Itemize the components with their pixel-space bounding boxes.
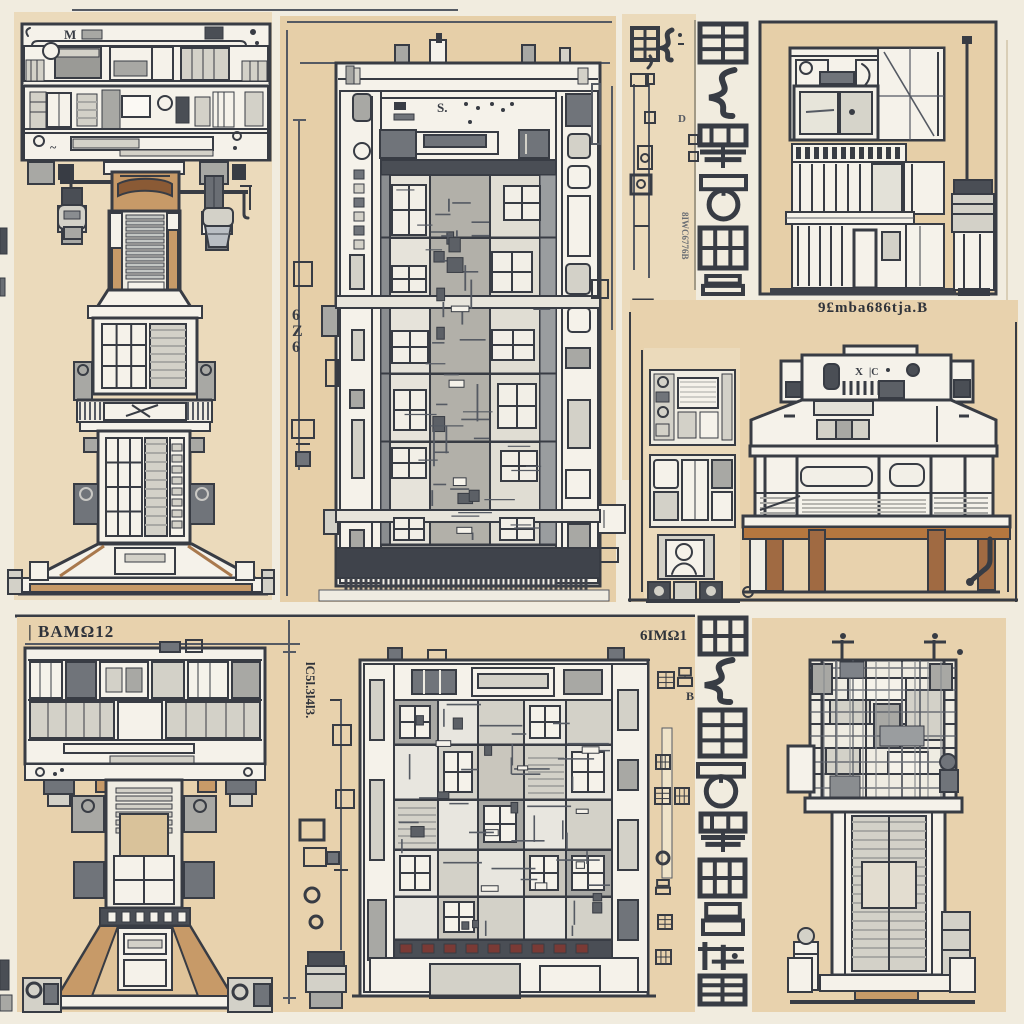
svg-text:6: 6 <box>292 339 300 356</box>
svg-text:|C: |C <box>869 367 878 378</box>
svg-text:| BAMΩ12: | BAMΩ12 <box>28 622 114 641</box>
svg-text:Z: Z <box>292 323 303 340</box>
svg-text:M: M <box>64 27 76 42</box>
svg-text:D: D <box>678 113 686 125</box>
svg-text:X: X <box>855 366 863 378</box>
svg-text:lC5l.3l4l3.: lC5l.3l4l3. <box>303 662 318 718</box>
svg-text:6IMΩ1: 6IMΩ1 <box>640 628 687 644</box>
svg-text:9£mba686tja.B: 9£mba686tja.B <box>818 300 928 316</box>
svg-text:~: ~ <box>50 140 57 154</box>
svg-text:6: 6 <box>292 307 300 324</box>
svg-text:S.: S. <box>437 100 447 115</box>
svg-text:8IWC6776B: 8IWC6776B <box>680 212 690 260</box>
svg-text:B: B <box>686 689 694 703</box>
